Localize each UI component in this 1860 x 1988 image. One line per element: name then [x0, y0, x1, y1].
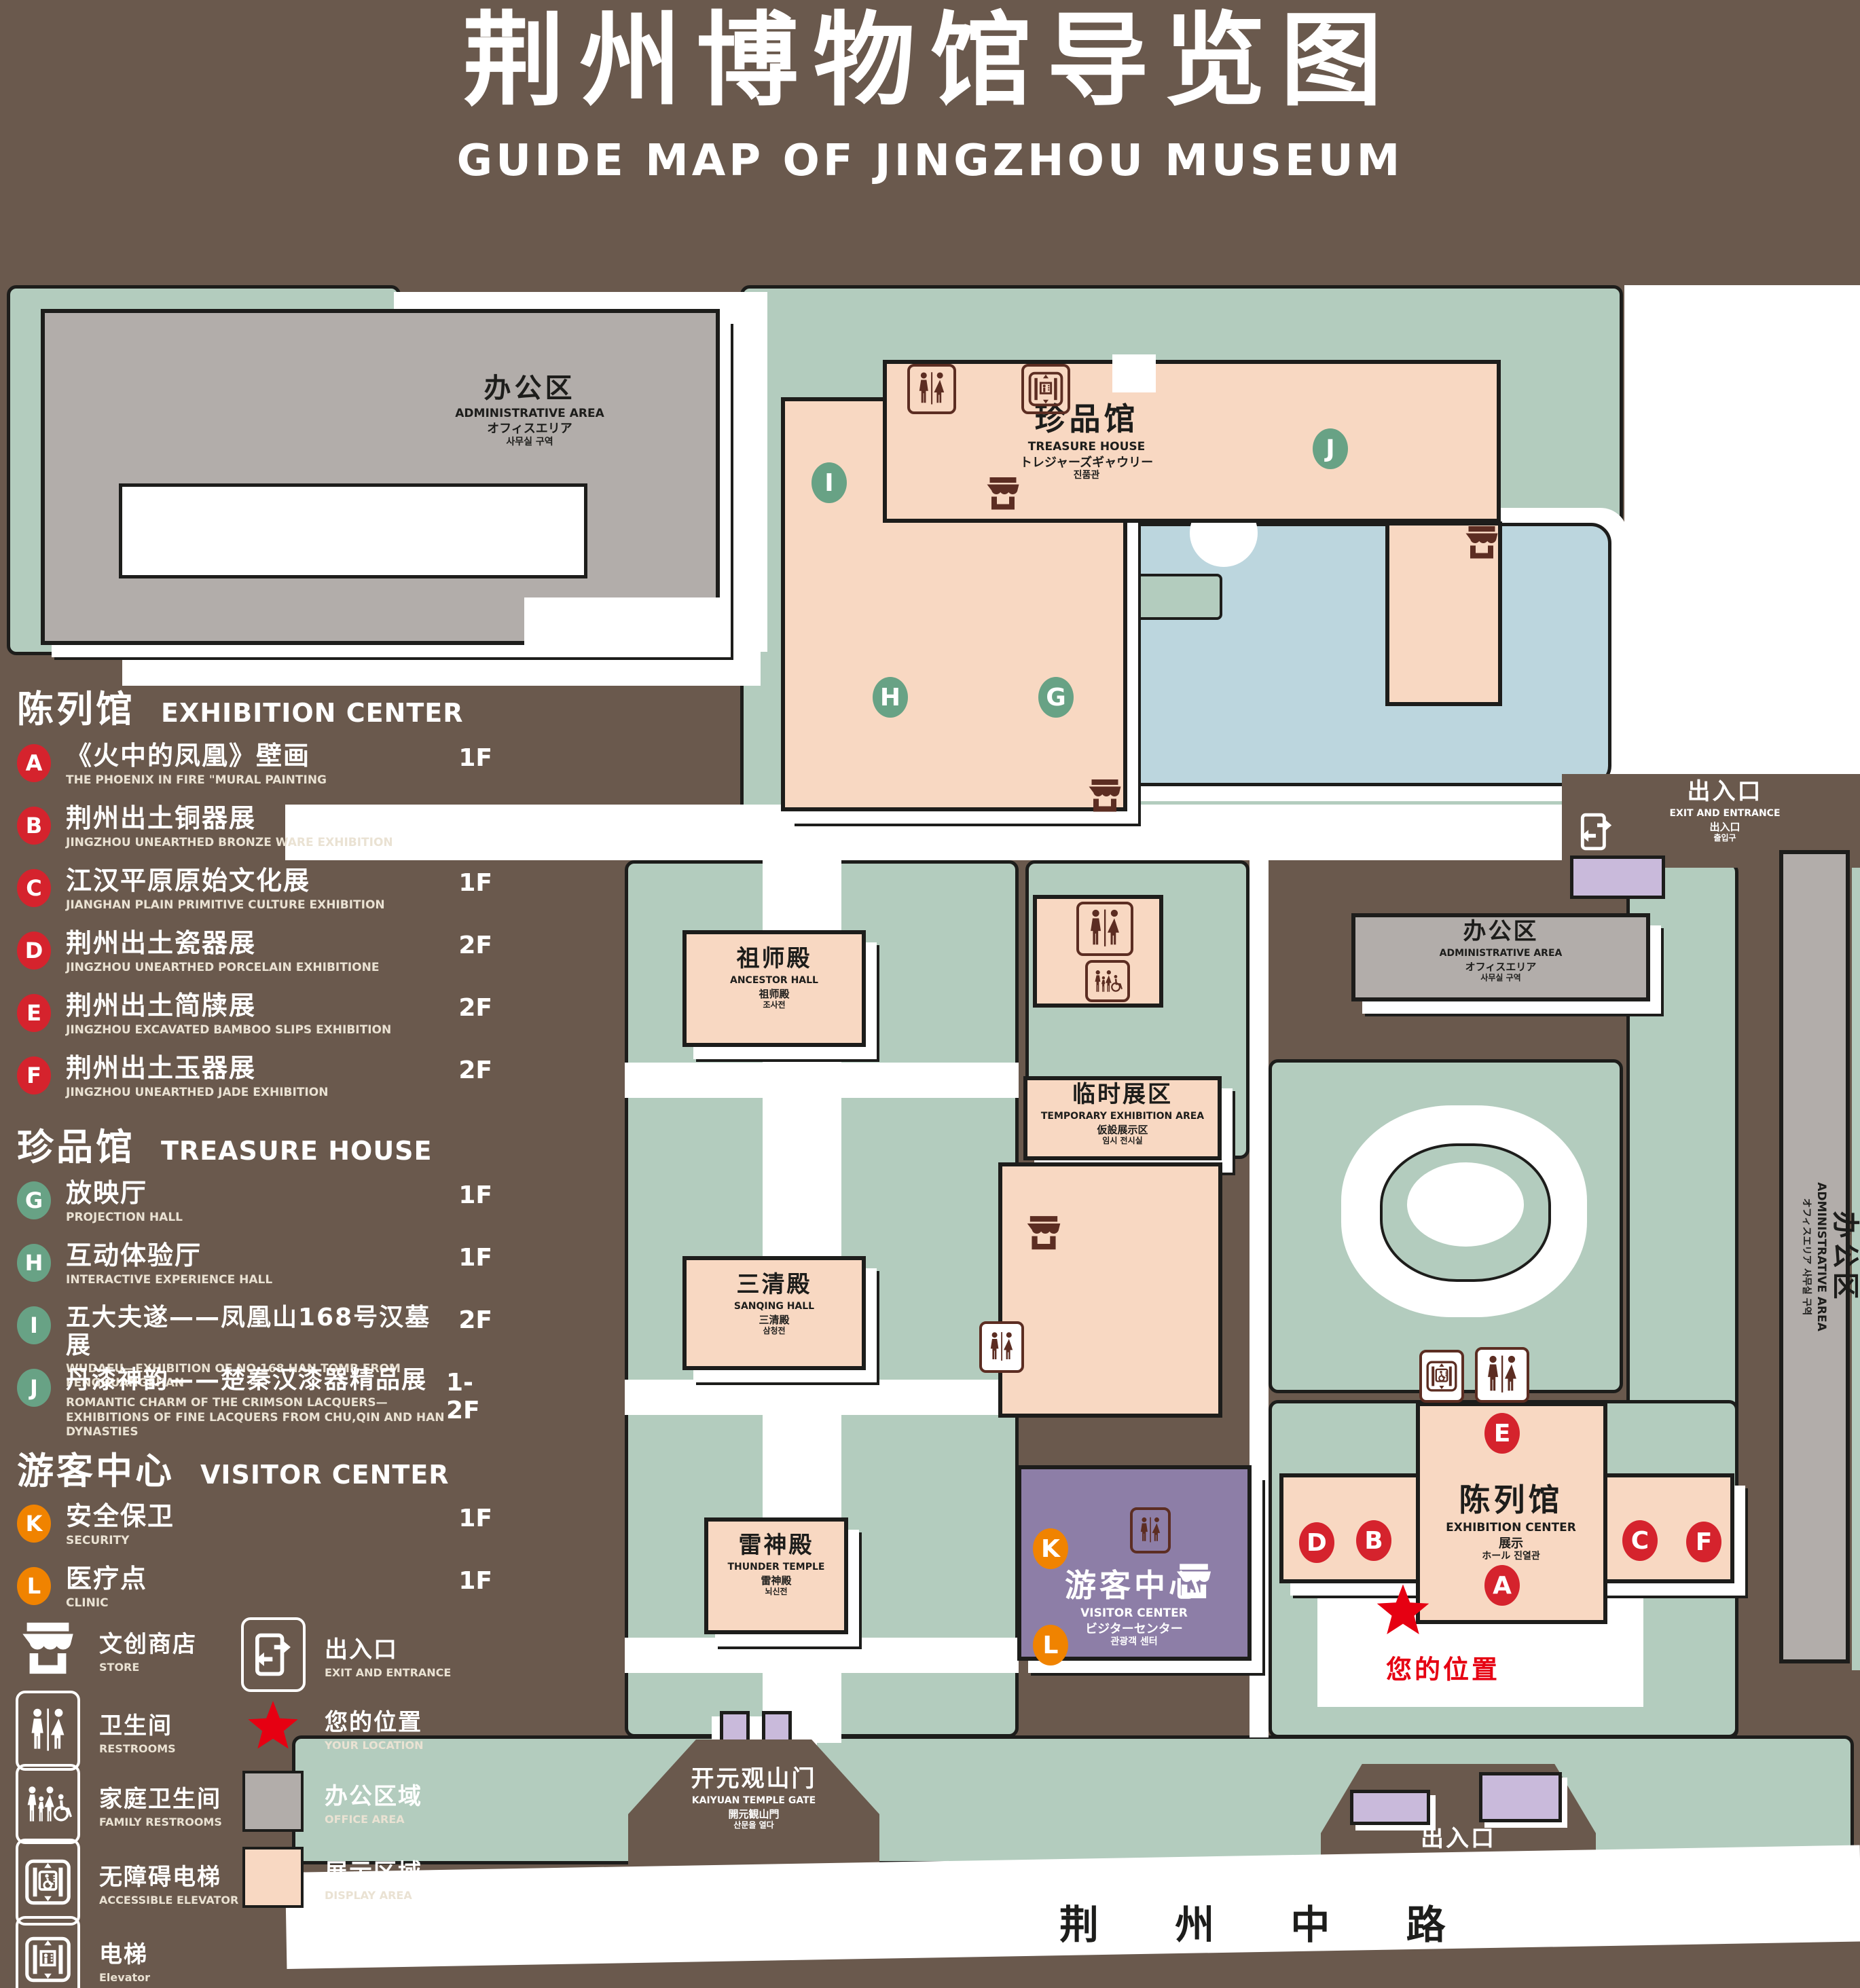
- legend-accessible-zh: 无障碍电梯: [99, 1858, 238, 1892]
- admin-side-label-ja: オフィスエリア: [1801, 1198, 1812, 1265]
- ancestor-hall-label: 祖师殿 ANCESTOR HALL 祖师殿 조사전: [686, 945, 862, 1010]
- building-west-exhibition-wing: [998, 1162, 1222, 1418]
- location-star-icon: [243, 1697, 303, 1757]
- legend-location-zh: 您的位置: [325, 1704, 423, 1737]
- store-icon: [983, 474, 1023, 515]
- legend-badge-L: L: [17, 1567, 51, 1605]
- legend-restrooms-en: RESTROOMS: [99, 1742, 176, 1755]
- restrooms-icon: [1475, 1347, 1529, 1403]
- legend-symbol-display-area: 展示区域 DISPLAY AREA: [239, 1847, 422, 1908]
- restrooms-icon: [1076, 902, 1133, 956]
- legend-store-zh: 文创商店: [99, 1625, 197, 1659]
- your-location-star-icon: [1372, 1581, 1434, 1643]
- legend-L-en: CLINIC: [66, 1596, 147, 1610]
- ancestor-label-ko: 조사전: [686, 1000, 862, 1010]
- garden-path-inner: [1407, 1162, 1524, 1247]
- exit-se-label: 出入口 EXIT AND ENTRANCE 出入口 출입구: [1341, 1825, 1575, 1876]
- building-exit-se-purple-left: [1350, 1790, 1430, 1825]
- exhibition-label-en: EXHIBITION CENTER: [1406, 1521, 1616, 1534]
- exit-ne-label: 出入口 EXIT AND ENTRANCE 出入口 출입구: [1603, 778, 1847, 843]
- legend-D-zh: 荆州出土瓷器展: [66, 929, 379, 959]
- admin-nw-label-ko: 사무실 구역: [340, 437, 720, 448]
- kaiyuan-gate-label: 开元观山门 KAIYUAN TEMPLE GATE 開元観山門 산문을 열다: [638, 1765, 869, 1830]
- legend-item-L: L 医疗点 CLINIC 1F: [17, 1564, 492, 1610]
- treasure-roof-notch: [1112, 354, 1156, 392]
- legend-G-en: PROJECTION HALL: [66, 1211, 183, 1225]
- map-marker-F: F: [1686, 1522, 1721, 1562]
- legend-family-zh: 家庭卫生间: [99, 1780, 222, 1814]
- legend-symbol-family-restrooms: 家庭卫生间 FAMILY RESTROOMS: [14, 1764, 222, 1844]
- gate-label-zh: 开元观山门: [638, 1765, 869, 1793]
- legend-symbol-exit: 出入口 EXIT AND ENTRANCE: [239, 1617, 451, 1692]
- legend-D-floor: 2F: [458, 929, 492, 959]
- legend-H-en: INTERACTIVE EXPERIENCE HALL: [66, 1273, 272, 1287]
- temporary-label-ko: 임시 전시실: [1025, 1136, 1220, 1145]
- exhibition-label-zh: 陈列馆: [1406, 1481, 1616, 1519]
- admin-nw-courtyard-2: [524, 597, 723, 646]
- legend-B-en: JINGZHOU UNEARTHED BRONZE WARE EXHIBITIO…: [66, 836, 393, 850]
- display-area-swatch: [242, 1847, 304, 1908]
- thunder-label-zh: 雷神殿: [708, 1532, 845, 1560]
- admin-side-label-ko: 사무실 구역: [1801, 1268, 1812, 1315]
- legend-badge-J: J: [17, 1369, 51, 1407]
- green-area-bottom: [292, 1735, 1854, 1864]
- legend-badge-A: A: [17, 744, 51, 782]
- sanqing-label-zh: 三清殿: [686, 1271, 862, 1299]
- exit-ne-label-en: EXIT AND ENTRANCE: [1603, 808, 1847, 820]
- store-icon: [1461, 523, 1502, 564]
- legend-symbol-store: 文创商店 STORE: [14, 1617, 197, 1682]
- map-marker-B: B: [1356, 1520, 1391, 1561]
- sanqing-label-ja: 三清殿: [686, 1314, 862, 1326]
- store-icon: [1172, 1560, 1216, 1604]
- legend-J-zh: 丹漆神韵——楚秦汉漆器精品展: [66, 1366, 446, 1394]
- thunder-label-ko: 뇌신전: [708, 1587, 845, 1596]
- legend-item-C: C 江汉平原原始文化展 JIANGHAN PLAIN PRIMITIVE CUL…: [17, 866, 492, 913]
- temporary-area-label: 临时展区 TEMPORARY EXHIBITION AREA 仮設展示区 임시 …: [1025, 1081, 1220, 1145]
- map-marker-I: I: [812, 462, 847, 503]
- family-restrooms-icon: [16, 1764, 80, 1844]
- thunder-label-en: THUNDER TEMPLE: [708, 1562, 845, 1573]
- legend-display-zh: 展示区域: [325, 1854, 422, 1887]
- family-restrooms-icon: [1085, 960, 1130, 1002]
- exit-ne-label-zh: 出入口: [1603, 778, 1847, 806]
- legend-elevator-zh: 电梯: [99, 1936, 150, 1969]
- admin-nw-label-en: ADMINISTRATIVE AREA: [340, 407, 720, 420]
- accessible-elevator-icon: [1419, 1350, 1464, 1403]
- treasure-label-ja: トレジャーズギャウリー: [917, 456, 1256, 471]
- legend-C-floor: 1F: [458, 866, 492, 897]
- exit-se-label-ko: 출입구: [1341, 1866, 1575, 1876]
- admin-nw-label: 办公区 ADMINISTRATIVE AREA オフィスエリア 사무실 구역: [340, 372, 720, 448]
- treasure-house-label: 珍品馆 TREASURE HOUSE トレジャーズギャウリー 진품관: [917, 401, 1256, 481]
- admin-nw-label-ja: オフィスエリア: [340, 422, 720, 437]
- legend-F-zh: 荆州出土玉器展: [66, 1054, 328, 1084]
- legend-exit-en: EXIT AND ENTRANCE: [325, 1666, 451, 1679]
- legend-D-en: JINGZHOU UNEARTHED PORCELAIN EXHIBITIONE: [66, 961, 379, 975]
- legend-C-zh: 江汉平原原始文化展: [66, 866, 385, 896]
- restrooms-icon: [979, 1321, 1024, 1373]
- legend-E-zh: 荆州出土简牍展: [66, 991, 391, 1021]
- treasure-label-ko: 진품관: [917, 470, 1256, 481]
- exit-ne-label-ko: 출입구: [1603, 833, 1847, 843]
- exhibition-label-ja: 展示: [1406, 1536, 1616, 1551]
- legend-symbol-elevator: 电梯 Elevator: [14, 1916, 150, 1988]
- legend-item-A: A 《火中的凤凰》壁画 THE PHOENIX IN FIRE "MURAL P…: [17, 741, 492, 788]
- legend-E-en: JINGZHOU EXCAVATED BAMBOO SLIPS EXHIBITI…: [66, 1023, 391, 1037]
- exit-icon: [1575, 811, 1618, 853]
- map-marker-D: D: [1299, 1522, 1334, 1563]
- legend-item-K: K 安全保卫 SECURITY 1F: [17, 1502, 492, 1548]
- legend-H-floor: 1F: [458, 1241, 492, 1272]
- your-location-text: 您的位置: [1345, 1649, 1542, 1686]
- exit-icon: [241, 1617, 306, 1692]
- legend-badge-D: D: [17, 932, 51, 970]
- legend-item-H: H 互动体验厅 INTERACTIVE EXPERIENCE HALL 1F: [17, 1241, 492, 1287]
- gate-label-ja: 開元観山門: [638, 1808, 869, 1820]
- legend-accessible-en: ACCESSIBLE ELEVATOR: [99, 1894, 238, 1907]
- ancestor-label-ja: 祖师殿: [686, 988, 862, 1000]
- legend-restrooms-zh: 卫生间: [99, 1707, 176, 1740]
- legend-badge-K: K: [17, 1505, 51, 1543]
- legend-badge-C: C: [17, 869, 51, 907]
- gate-label-en: KAIYUAN TEMPLE GATE: [638, 1795, 869, 1807]
- legend-symbol-your-location: 您的位置 YOUR LOCATION: [239, 1697, 423, 1757]
- legend-item-J: J 丹漆神韵——楚秦汉漆器精品展 ROMANTIC CHARM OF THE C…: [17, 1366, 492, 1439]
- exit-ne-label-ja: 出入口: [1603, 821, 1847, 833]
- admin-side-label-en: ADMINISTRATIVE AREA: [1815, 1182, 1828, 1331]
- office-area-swatch: [242, 1771, 304, 1832]
- admin-side-label-zh: 办公区: [1829, 1211, 1860, 1303]
- temporary-label-zh: 临时展区: [1025, 1081, 1220, 1109]
- accessible-elevator-icon: [16, 1839, 80, 1926]
- legend-treasure-title-en: TREASURE HOUSE: [161, 1136, 433, 1166]
- road-cross-2: [625, 1380, 1019, 1415]
- map-marker-L: L: [1033, 1625, 1068, 1665]
- legend-office-zh: 办公区域: [325, 1778, 422, 1811]
- legend-item-E: E 荆州出土简牍展 JINGZHOU EXCAVATED BAMBOO SLIP…: [17, 991, 492, 1037]
- white-corner-ne: [1624, 285, 1860, 793]
- legend-K-zh: 安全保卫: [66, 1502, 175, 1532]
- store-icon: [16, 1617, 80, 1682]
- legend-item-B: B 荆州出土铜器展 JINGZHOU UNEARTHED BRONZE WARE…: [17, 804, 492, 850]
- restrooms-icon: [16, 1691, 80, 1771]
- legend-exhibition-title-zh: 陈列馆: [17, 679, 135, 733]
- legend-B-floor: 1F: [458, 804, 492, 834]
- legend-visitor-title-en: VISITOR CENTER: [200, 1460, 450, 1490]
- admin-e-label-ja: オフィスエリア: [1358, 961, 1643, 973]
- elevator-icon: [1021, 364, 1070, 414]
- legend-display-en: DISPLAY AREA: [325, 1889, 422, 1902]
- legend-symbol-accessible-elevator: 无障碍电梯 ACCESSIBLE ELEVATOR: [14, 1839, 238, 1926]
- ancestor-label-en: ANCESTOR HALL: [686, 975, 862, 987]
- map-marker-A: A: [1484, 1565, 1520, 1606]
- building-exit-ne-purple: [1570, 855, 1665, 899]
- legend-item-F: F 荆州出土玉器展 JINGZHOU UNEARTHED JADE EXHIBI…: [17, 1054, 492, 1100]
- legend-K-floor: 1F: [458, 1502, 492, 1532]
- admin-e-label-zh: 办公区: [1358, 918, 1643, 946]
- temporary-label-ja: 仮設展示区: [1025, 1124, 1220, 1136]
- map-marker-G: G: [1038, 677, 1074, 718]
- legend-I-zh: 五大夫遂——凤凰山168号汉墓展: [66, 1304, 446, 1360]
- road-vertical-center: [1250, 860, 1269, 1737]
- map-marker-H: H: [873, 677, 908, 718]
- store-icon: [1084, 776, 1125, 817]
- thunder-label-ja: 雷神殿: [708, 1575, 845, 1587]
- building-exit-se-purple-right: [1479, 1772, 1562, 1822]
- sanqing-label-ko: 삼청전: [686, 1326, 862, 1336]
- legend-J-en: ROMANTIC CHARM OF THE CRIMSON LACQUERS—E…: [66, 1396, 446, 1439]
- map-marker-J: J: [1313, 428, 1348, 469]
- legend-store-en: STORE: [99, 1661, 197, 1674]
- legend-family-en: FAMILY RESTROOMS: [99, 1816, 222, 1828]
- guide-map-poster: 荆州博物馆导览图 GUIDE MAP OF JINGZHOU MUSEUM 办公…: [0, 0, 1860, 1988]
- legend-badge-F: F: [17, 1056, 51, 1094]
- exit-se-label-zh: 出入口: [1341, 1825, 1575, 1853]
- legend-badge-B: B: [17, 807, 51, 845]
- admin-nw-label-zh: 办公区: [340, 372, 720, 405]
- legend-badge-E: E: [17, 994, 51, 1032]
- exit-se-label-en: EXIT AND ENTRANCE: [1341, 1855, 1575, 1866]
- legend-badge-I: I: [17, 1306, 51, 1344]
- legend-item-G: G 放映厅 PROJECTION HALL 1F: [17, 1179, 492, 1225]
- legend-A-zh: 《火中的凤凰》壁画: [66, 741, 327, 771]
- legend-treasure-title-zh: 珍品馆: [17, 1117, 135, 1171]
- legend-section-exhibition-center: 陈列馆 EXHIBITION CENTER: [17, 679, 463, 733]
- legend-exhibition-title-en: EXHIBITION CENTER: [161, 698, 463, 728]
- legend-A-floor: 1F: [458, 741, 492, 772]
- legend-section-visitor-center: 游客中心 VISITOR CENTER: [17, 1441, 450, 1494]
- admin-e-label-ko: 사무실 구역: [1358, 973, 1643, 982]
- building-admin-nw: [41, 309, 720, 645]
- legend-symbol-restrooms: 卫生间 RESTROOMS: [14, 1691, 176, 1771]
- legend-J-floor: 1-2F: [446, 1366, 492, 1424]
- legend-L-floor: 1F: [458, 1564, 492, 1595]
- restrooms-icon: [1130, 1507, 1171, 1553]
- road-cross-1: [625, 1063, 1019, 1098]
- page-subtitle: GUIDE MAP OF JINGZHOU MUSEUM: [0, 136, 1860, 186]
- gate-label-ko: 산문을 열다: [638, 1820, 869, 1830]
- map-marker-K: K: [1033, 1528, 1068, 1569]
- ancestor-label-zh: 祖师殿: [686, 945, 862, 973]
- legend-F-en: JINGZHOU UNEARTHED JADE EXHIBITION: [66, 1086, 328, 1100]
- legend-K-en: SECURITY: [66, 1534, 175, 1548]
- pond: [1042, 523, 1611, 786]
- legend-badge-H: H: [17, 1244, 51, 1282]
- treasure-label-zh: 珍品馆: [917, 401, 1256, 438]
- legend-item-D: D 荆州出土瓷器展 JINGZHOU UNEARTHED PORCELAIN E…: [17, 929, 492, 975]
- thunder-temple-label: 雷神殿 THUNDER TEMPLE 雷神殿 뇌신전: [708, 1532, 845, 1596]
- treasure-label-en: TREASURE HOUSE: [917, 440, 1256, 454]
- legend-L-zh: 医疗点: [66, 1564, 147, 1594]
- legend-H-zh: 互动体验厅: [66, 1241, 272, 1271]
- legend-A-en: THE PHOENIX IN FIRE "MURAL PAINTING: [66, 773, 327, 788]
- legend-section-treasure-house: 珍品馆 TREASURE HOUSE: [17, 1117, 433, 1171]
- legend-F-floor: 2F: [458, 1054, 492, 1084]
- legend-location-en: YOUR LOCATION: [325, 1739, 423, 1752]
- elevator-icon: [16, 1916, 80, 1988]
- legend-office-en: OFFICE AREA: [325, 1813, 422, 1826]
- legend-I-floor: 2F: [458, 1304, 492, 1334]
- visitor-label-en: VISITOR CENTER: [1032, 1606, 1236, 1620]
- road-cross-3: [625, 1638, 1019, 1673]
- legend-symbol-office-area: 办公区域 OFFICE AREA: [239, 1771, 422, 1832]
- exhibition-center-label: 陈列馆 EXHIBITION CENTER 展示 ホール 진열관: [1406, 1481, 1616, 1562]
- legend-badge-G: G: [17, 1181, 51, 1219]
- legend-E-floor: 2F: [458, 991, 492, 1022]
- store-icon: [1023, 1213, 1065, 1255]
- admin-e-label: 办公区 ADMINISTRATIVE AREA オフィスエリア 사무실 구역: [1358, 918, 1643, 982]
- legend-C-en: JIANGHAN PLAIN PRIMITIVE CULTURE EXHIBIT…: [66, 898, 385, 913]
- sanqing-hall-label: 三清殿 SANQING HALL 三清殿 삼청전: [686, 1271, 862, 1336]
- legend-G-zh: 放映厅: [66, 1179, 183, 1209]
- restrooms-icon: [907, 364, 956, 414]
- legend-B-zh: 荆州出土铜器展: [66, 804, 393, 834]
- road-name: 荆 州 中 路: [1059, 1893, 1477, 1950]
- admin-side-label: 办公区 ADMINISTRATIVE AREA オフィスエリア 사무실 구역: [1767, 1053, 1860, 1460]
- map-marker-C: C: [1622, 1520, 1658, 1561]
- admin-nw-courtyard: [119, 483, 587, 578]
- page-title: 荆州博物馆导览图: [0, 5, 1860, 117]
- temporary-label-en: TEMPORARY EXHIBITION AREA: [1025, 1111, 1220, 1122]
- legend-elevator-en: Elevator: [99, 1971, 150, 1984]
- sanqing-label-en: SANQING HALL: [686, 1301, 862, 1312]
- exhibition-label-ko: ホール 진열관: [1406, 1551, 1616, 1562]
- map-marker-E: E: [1484, 1413, 1520, 1454]
- admin-e-label-en: ADMINISTRATIVE AREA: [1358, 948, 1643, 959]
- legend-exit-zh: 出入口: [325, 1631, 451, 1664]
- legend-G-floor: 1F: [458, 1179, 492, 1209]
- legend-visitor-title-zh: 游客中心: [17, 1441, 175, 1494]
